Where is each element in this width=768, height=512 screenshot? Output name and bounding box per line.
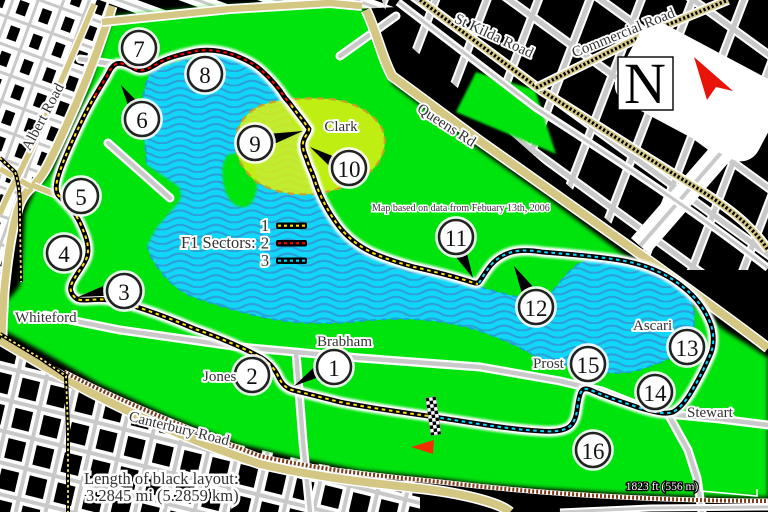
svg-text:Jones: Jones <box>203 369 236 385</box>
svg-text:Ascari: Ascari <box>633 318 672 334</box>
svg-text:Brabham: Brabham <box>317 334 372 350</box>
svg-text:Map based on data from Febuary: Map based on data from Febuary 13th, 200… <box>372 203 550 214</box>
svg-text:N: N <box>624 51 666 116</box>
svg-text:11: 11 <box>445 226 467 251</box>
svg-text:3.2845 mi (5.2859 km): 3.2845 mi (5.2859 km) <box>86 486 239 505</box>
svg-text:1: 1 <box>328 356 340 381</box>
svg-text:1823 ft (556 m): 1823 ft (556 m) <box>626 481 699 493</box>
svg-text:Whiteford: Whiteford <box>15 310 77 326</box>
svg-text:Prost: Prost <box>533 356 565 372</box>
svg-text:4: 4 <box>58 242 70 267</box>
svg-text:9: 9 <box>249 132 261 157</box>
svg-text:10: 10 <box>338 157 361 182</box>
svg-text:Stewart: Stewart <box>687 405 734 421</box>
svg-text:5: 5 <box>75 185 87 210</box>
svg-text:6: 6 <box>136 108 148 133</box>
svg-text:F1 Sectors:: F1 Sectors: <box>181 233 256 252</box>
svg-text:12: 12 <box>525 296 548 321</box>
svg-text:3: 3 <box>261 251 269 270</box>
svg-text:7: 7 <box>133 37 145 62</box>
svg-text:2: 2 <box>261 234 269 253</box>
svg-text:3: 3 <box>118 280 130 305</box>
svg-text:Clark: Clark <box>324 119 358 135</box>
svg-text:1: 1 <box>261 216 269 235</box>
svg-text:2: 2 <box>246 364 258 389</box>
svg-text:15: 15 <box>577 353 600 378</box>
svg-text:13: 13 <box>676 336 699 361</box>
svg-text:16: 16 <box>582 439 605 464</box>
svg-text:14: 14 <box>644 381 668 406</box>
svg-text:8: 8 <box>199 63 211 88</box>
